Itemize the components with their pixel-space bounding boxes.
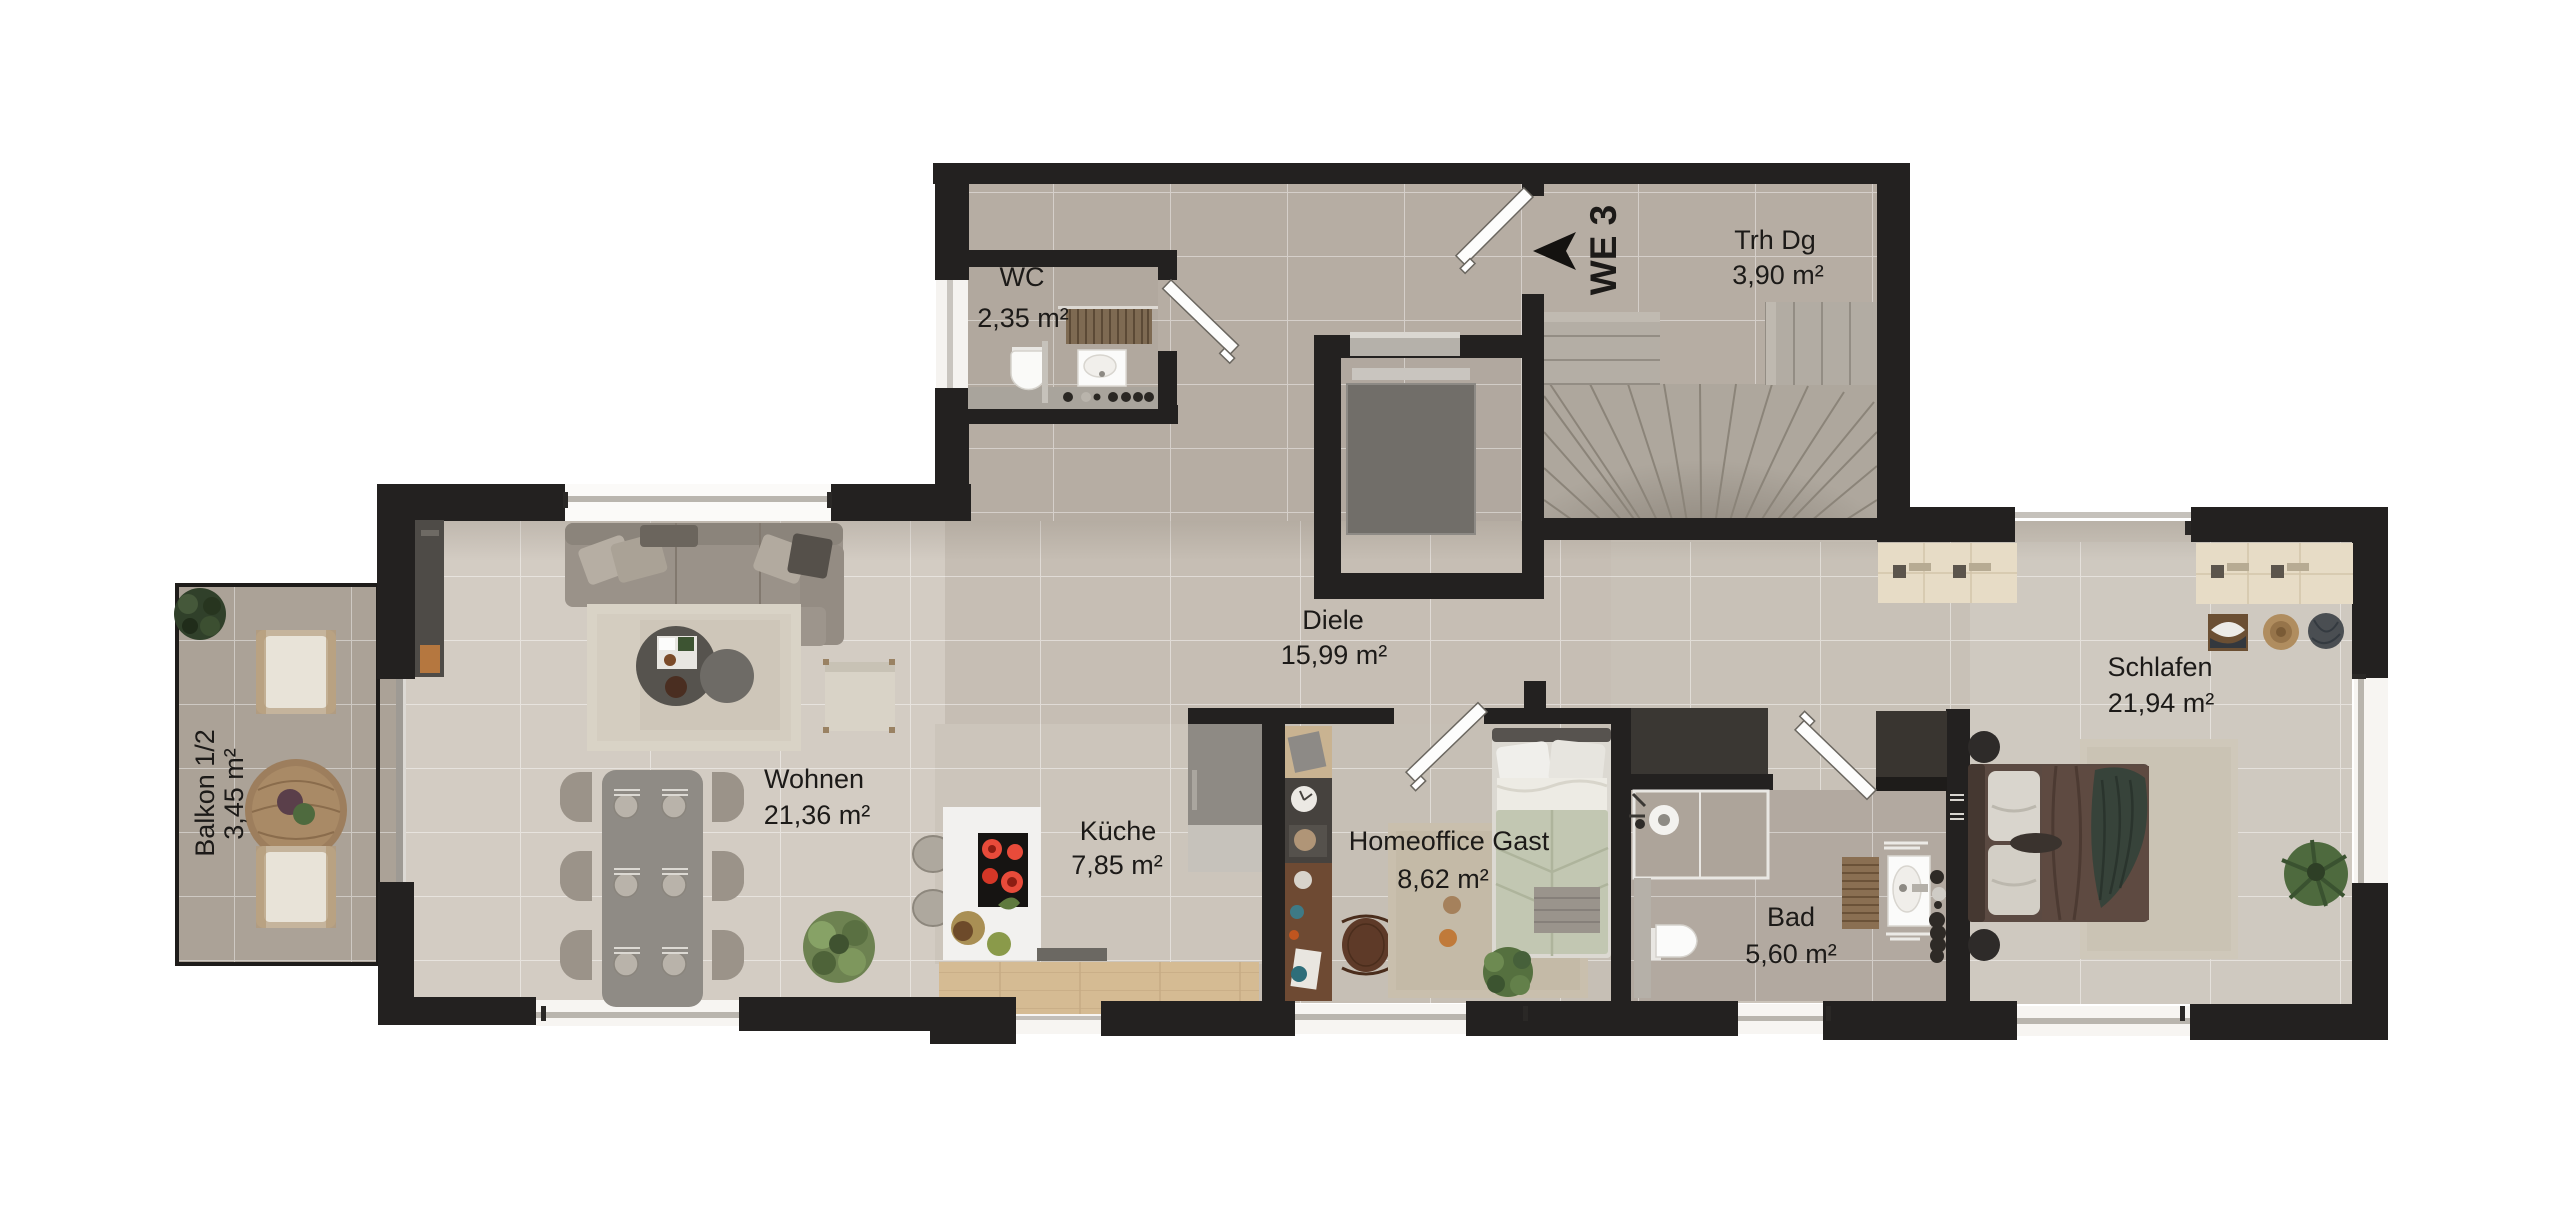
svg-text:Bad: Bad: [1767, 902, 1815, 932]
svg-text:Trh Dg: Trh Dg: [1734, 225, 1816, 255]
svg-text:5,60 m²: 5,60 m²: [1745, 939, 1837, 969]
svg-text:8,62 m²: 8,62 m²: [1397, 864, 1489, 894]
svg-text:WE 3: WE 3: [1583, 205, 1624, 295]
svg-text:15,99 m²: 15,99 m²: [1281, 640, 1388, 670]
svg-text:Wohnen: Wohnen: [764, 764, 864, 794]
svg-text:Küche: Küche: [1080, 816, 1157, 846]
svg-text:21,36 m²: 21,36 m²: [764, 800, 871, 830]
svg-text:7,85 m²: 7,85 m²: [1071, 850, 1163, 880]
svg-text:3,45 m²: 3,45 m²: [219, 748, 249, 840]
svg-text:2,35 m²: 2,35 m²: [977, 303, 1069, 333]
svg-text:Schlafen: Schlafen: [2107, 652, 2212, 682]
svg-text:21,94 m²: 21,94 m²: [2108, 688, 2215, 718]
svg-text:Diele: Diele: [1302, 605, 1364, 635]
svg-text:3,90 m²: 3,90 m²: [1732, 260, 1824, 290]
svg-text:Homeoffice Gast: Homeoffice Gast: [1349, 826, 1550, 856]
svg-text:Balkon 1/2: Balkon 1/2: [190, 729, 220, 857]
svg-text:WC: WC: [1000, 262, 1045, 292]
